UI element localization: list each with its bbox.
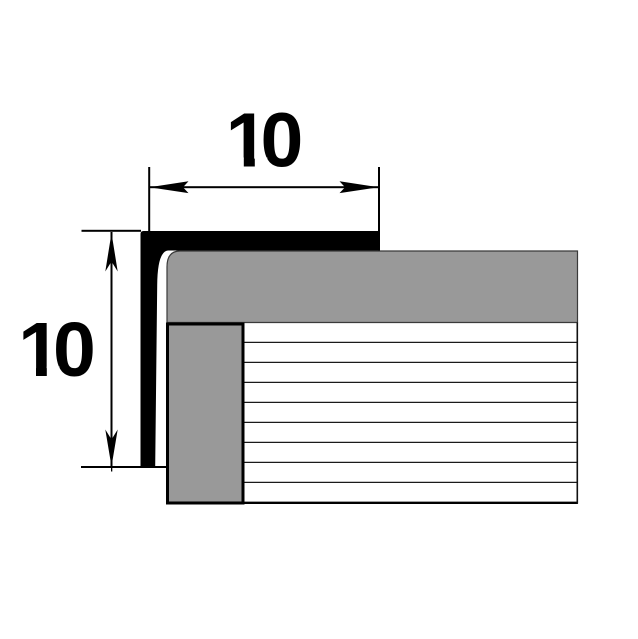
svg-text:10: 10 xyxy=(18,307,93,393)
svg-text:10: 10 xyxy=(226,98,301,184)
